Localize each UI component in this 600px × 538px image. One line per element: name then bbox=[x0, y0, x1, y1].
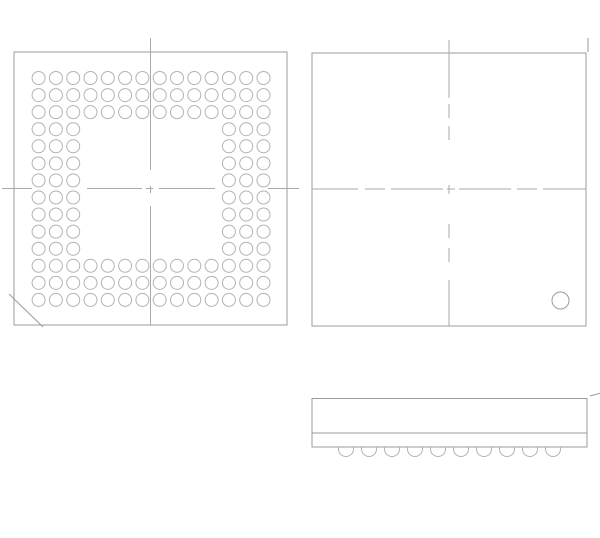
ball-pad bbox=[67, 242, 80, 255]
ball-pad bbox=[32, 123, 45, 136]
ball-pad bbox=[49, 72, 62, 85]
package-drawing-canvas bbox=[0, 0, 600, 538]
ball-pad bbox=[240, 293, 253, 306]
ball-pad bbox=[67, 293, 80, 306]
ball-pad bbox=[205, 89, 218, 102]
solder-ball bbox=[454, 447, 469, 457]
ball-pad bbox=[257, 123, 270, 136]
ball-pad bbox=[101, 293, 114, 306]
ball-pad bbox=[67, 140, 80, 153]
ball-pad bbox=[67, 276, 80, 289]
ball-pad bbox=[49, 293, 62, 306]
leader-tick bbox=[590, 393, 600, 396]
ball-pad bbox=[49, 174, 62, 187]
ball-pad bbox=[205, 276, 218, 289]
pin1-indicator-circle bbox=[552, 292, 569, 309]
package-body bbox=[312, 399, 587, 448]
ball-pad bbox=[153, 72, 166, 85]
ball-pad bbox=[240, 242, 253, 255]
side-view bbox=[312, 393, 600, 457]
ball-pad bbox=[32, 225, 45, 238]
ball-pad bbox=[222, 106, 235, 119]
ball-pad bbox=[101, 276, 114, 289]
solder-ball bbox=[385, 447, 400, 457]
ball-pad bbox=[257, 208, 270, 221]
ball-pad bbox=[84, 89, 97, 102]
ball-pad bbox=[171, 106, 184, 119]
ball-pad bbox=[257, 106, 270, 119]
ball-pad bbox=[119, 259, 132, 272]
ball-pad bbox=[240, 157, 253, 170]
ball-pad bbox=[67, 191, 80, 204]
ball-pad bbox=[67, 89, 80, 102]
ball-pad bbox=[136, 106, 149, 119]
ball-pad bbox=[222, 225, 235, 238]
ball-pad bbox=[205, 259, 218, 272]
ball-pad bbox=[101, 89, 114, 102]
ball-pad bbox=[119, 106, 132, 119]
ball-pad bbox=[257, 89, 270, 102]
ball-pad bbox=[84, 293, 97, 306]
ball-pad bbox=[257, 276, 270, 289]
ball-pad bbox=[222, 140, 235, 153]
solder-ball bbox=[339, 447, 354, 457]
ball-pad bbox=[32, 174, 45, 187]
side-view-body bbox=[312, 399, 587, 448]
ball-pad bbox=[188, 106, 201, 119]
solder-ball bbox=[362, 447, 377, 457]
solder-ball bbox=[477, 447, 492, 457]
ball-pad bbox=[222, 191, 235, 204]
ball-pad bbox=[153, 259, 166, 272]
ball-pad bbox=[257, 225, 270, 238]
ball-pad bbox=[188, 89, 201, 102]
ball-pad bbox=[257, 157, 270, 170]
ball-pad bbox=[240, 89, 253, 102]
solder-balls bbox=[339, 447, 561, 457]
ball-pad bbox=[67, 174, 80, 187]
ball-pad bbox=[240, 208, 253, 221]
ball-pad bbox=[240, 276, 253, 289]
ball-pad bbox=[32, 259, 45, 272]
ball-pad bbox=[119, 293, 132, 306]
ball-pad bbox=[32, 157, 45, 170]
ball-pad bbox=[188, 72, 201, 85]
drawing-svg bbox=[0, 0, 600, 538]
ball-pad bbox=[205, 293, 218, 306]
ball-pad bbox=[222, 276, 235, 289]
ball-pad bbox=[32, 140, 45, 153]
ball-pad bbox=[49, 191, 62, 204]
solder-ball bbox=[546, 447, 561, 457]
ball-pad bbox=[136, 259, 149, 272]
ball-pad bbox=[84, 72, 97, 85]
ball-pad bbox=[240, 123, 253, 136]
ball-pad bbox=[153, 89, 166, 102]
ball-pad bbox=[222, 123, 235, 136]
ball-pad bbox=[257, 140, 270, 153]
ball-pad bbox=[171, 293, 184, 306]
ball-pad bbox=[222, 174, 235, 187]
ball-pad bbox=[119, 276, 132, 289]
ball-pad bbox=[205, 106, 218, 119]
ball-pad bbox=[257, 191, 270, 204]
ball-pad bbox=[49, 225, 62, 238]
ball-pad bbox=[222, 157, 235, 170]
ball-pad bbox=[153, 276, 166, 289]
ball-pad bbox=[67, 225, 80, 238]
pin1-mark bbox=[552, 292, 569, 309]
ball-pad bbox=[32, 208, 45, 221]
bottom-view bbox=[2, 38, 299, 327]
ball-pad bbox=[67, 72, 80, 85]
ball-pad bbox=[136, 72, 149, 85]
ball-pad bbox=[171, 89, 184, 102]
ball-pad bbox=[49, 276, 62, 289]
ball-pad bbox=[136, 276, 149, 289]
ball-pad bbox=[240, 140, 253, 153]
side-view-tick bbox=[590, 393, 600, 396]
ball-pad bbox=[67, 106, 80, 119]
ball-pad bbox=[32, 72, 45, 85]
ball-pad bbox=[49, 259, 62, 272]
ball-pad bbox=[49, 208, 62, 221]
ball-pad bbox=[67, 157, 80, 170]
top-view bbox=[312, 38, 588, 326]
ball-pad bbox=[240, 174, 253, 187]
ball-pad bbox=[101, 259, 114, 272]
ball-pad bbox=[119, 89, 132, 102]
ball-pad bbox=[188, 259, 201, 272]
ball-pad bbox=[67, 259, 80, 272]
ball-pad bbox=[257, 293, 270, 306]
ball-pad bbox=[257, 259, 270, 272]
ball-pad bbox=[136, 293, 149, 306]
ball-pad bbox=[257, 72, 270, 85]
ball-pad bbox=[49, 242, 62, 255]
ball-pad bbox=[171, 72, 184, 85]
top-view-centerlines bbox=[312, 40, 586, 326]
ball-pad bbox=[32, 106, 45, 119]
ball-pad bbox=[101, 72, 114, 85]
ball-pad bbox=[240, 191, 253, 204]
ball-pad bbox=[32, 89, 45, 102]
ball-pad bbox=[49, 140, 62, 153]
ball-pad bbox=[240, 106, 253, 119]
solder-ball bbox=[500, 447, 515, 457]
ball-pad bbox=[257, 242, 270, 255]
ball-pad bbox=[32, 191, 45, 204]
solder-ball bbox=[523, 447, 538, 457]
ball-pad bbox=[84, 276, 97, 289]
ball-pad bbox=[188, 276, 201, 289]
ball-pad bbox=[171, 276, 184, 289]
ball-pad bbox=[153, 293, 166, 306]
ball-pad bbox=[84, 106, 97, 119]
ball-pad bbox=[222, 72, 235, 85]
ball-pad bbox=[32, 276, 45, 289]
ball-pad bbox=[188, 293, 201, 306]
bottom-view-centerlines bbox=[2, 38, 299, 325]
ball-pad bbox=[153, 106, 166, 119]
ball-pad bbox=[32, 242, 45, 255]
solder-ball bbox=[431, 447, 446, 457]
ball-pad bbox=[240, 72, 253, 85]
ball-pad bbox=[67, 208, 80, 221]
ball-pad bbox=[49, 157, 62, 170]
ball-pad bbox=[49, 89, 62, 102]
ball-pad bbox=[84, 259, 97, 272]
solder-ball bbox=[408, 447, 423, 457]
ball-pad bbox=[222, 89, 235, 102]
ball-pad bbox=[240, 259, 253, 272]
ball-pad bbox=[136, 89, 149, 102]
ball-pad bbox=[222, 293, 235, 306]
ball-pad bbox=[222, 242, 235, 255]
ball-pad bbox=[222, 259, 235, 272]
ball-pad bbox=[205, 72, 218, 85]
ball-pad bbox=[171, 259, 184, 272]
ball-pad bbox=[49, 123, 62, 136]
ball-pad bbox=[222, 208, 235, 221]
ball-pad bbox=[257, 174, 270, 187]
ball-pad bbox=[67, 123, 80, 136]
ball-pad bbox=[32, 293, 45, 306]
ball-pad bbox=[119, 72, 132, 85]
ball-pad bbox=[101, 106, 114, 119]
ball-pad bbox=[49, 106, 62, 119]
ball-pad bbox=[240, 225, 253, 238]
